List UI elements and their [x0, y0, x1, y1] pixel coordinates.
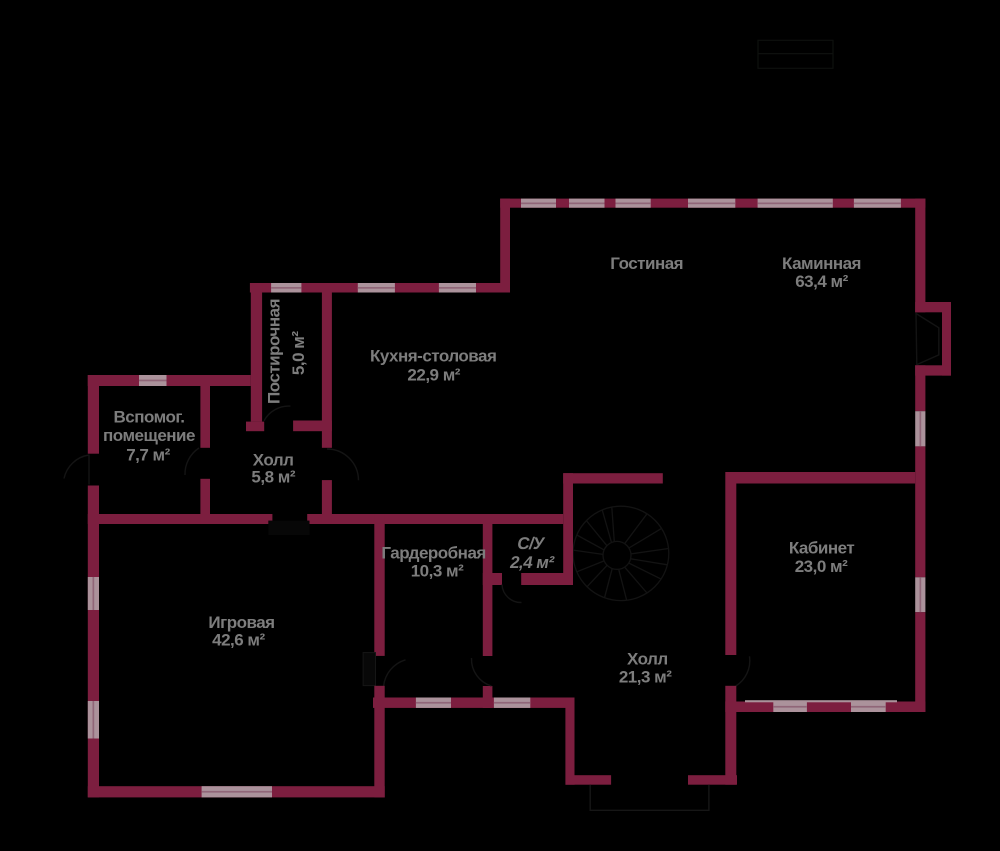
- svg-text:Кухня-столовая: Кухня-столовая: [370, 347, 496, 366]
- svg-text:10,3 м²: 10,3 м²: [411, 562, 464, 581]
- svg-text:Гостиная: Гостиная: [610, 254, 683, 273]
- svg-text:7,7 м²: 7,7 м²: [126, 446, 170, 465]
- svg-text:Игровая: Игровая: [208, 613, 274, 632]
- svg-text:помещение: помещение: [103, 426, 195, 445]
- svg-text:Каминная: Каминная: [782, 254, 861, 273]
- svg-text:Кабинет: Кабинет: [789, 539, 854, 558]
- svg-text:42,6 м²: 42,6 м²: [212, 631, 265, 650]
- svg-text:2,4 м²: 2,4 м²: [509, 552, 557, 572]
- svg-text:Вспомог.: Вспомог.: [114, 408, 185, 427]
- svg-text:5,8 м²: 5,8 м²: [251, 468, 295, 487]
- svg-text:63,4 м²: 63,4 м²: [795, 272, 848, 291]
- svg-text:Гардеробная: Гардеробная: [381, 544, 486, 563]
- svg-text:5,0 м²: 5,0 м²: [289, 331, 308, 375]
- svg-text:22,9 м²: 22,9 м²: [407, 366, 460, 385]
- svg-text:21,3 м²: 21,3 м²: [619, 668, 672, 687]
- svg-text:Холл: Холл: [627, 650, 668, 669]
- svg-text:23,0 м²: 23,0 м²: [795, 557, 848, 576]
- svg-text:С/У: С/У: [516, 533, 546, 553]
- svg-text:Постирочная: Постирочная: [265, 299, 284, 404]
